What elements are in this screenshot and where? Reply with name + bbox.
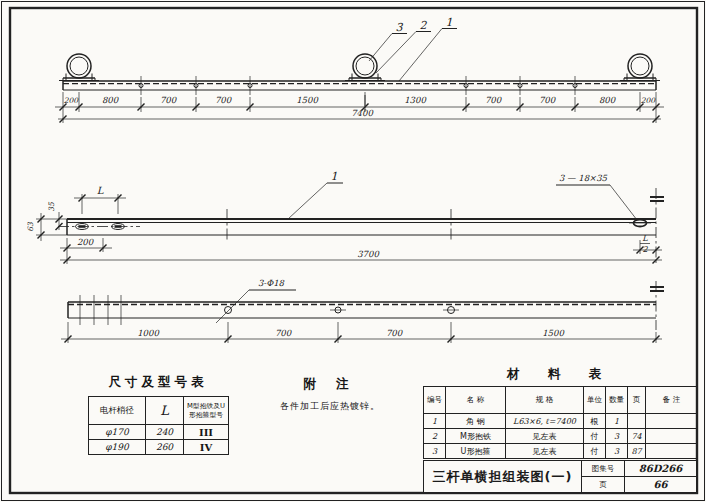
mat-header-no: 编号 (424, 387, 446, 414)
size-table-header-L: L (146, 397, 184, 425)
crossarm-beam-side (67, 219, 656, 235)
mat-cell: 3 (606, 444, 628, 459)
atlas-number-value: 86D266 (625, 461, 696, 476)
dim-label: 1000 (137, 328, 159, 338)
size-table-cell: φ170 (89, 425, 146, 440)
dim-L-half-den: 2 (642, 245, 648, 254)
dim-200-label: 200 (77, 237, 94, 247)
crossarm-beam-bottom (68, 302, 656, 318)
mat-cell: 3 (606, 429, 628, 444)
dim-label: 700 (485, 95, 502, 105)
callout-2: 2 (420, 19, 428, 32)
material-table-block: 材 料 表 编号 名 称 规 格 单位 数量 页 备 注 1 角 钢 L63×6… (423, 366, 697, 459)
mat-cell: 1 (606, 414, 628, 429)
dim-L: L (74, 185, 126, 214)
left-hole-centrelines (80, 295, 121, 325)
mat-cell: L63×6, ℓ=7400 (506, 414, 584, 429)
size-table-cell: 240 (146, 425, 184, 440)
dim-63-label: 63 (26, 221, 35, 232)
size-model-table-block: 尺寸及型号表 电杆梢径 L M型抱铁及U形抱箍型号 φ170 240 III φ… (88, 374, 228, 455)
dim-label: 200 (641, 96, 657, 105)
mat-cell: M形抱铁 (446, 429, 506, 444)
bottom-dim-row: 1000 700 700 1500 (61, 322, 662, 343)
dim-L-label: L (97, 185, 104, 196)
title-block: 三杆单横担组装图(一) 图集号 86D266 页 66 (423, 460, 697, 493)
hole-callout-bottom-label: 3-Φ18 (258, 278, 285, 288)
overall-dim-label: 7400 (351, 108, 373, 118)
dim-3700: 3700 (60, 249, 662, 264)
dim-label: 700 (386, 328, 403, 338)
notes-title: 附 注 (255, 376, 405, 393)
mat-cell: 付 (584, 429, 606, 444)
part-callouts: 3 2 1 (369, 16, 457, 81)
break-symbol-middle (650, 188, 664, 266)
mat-header-qty: 数量 (606, 387, 628, 414)
dim-label: 700 (539, 95, 556, 105)
bottom-view: 3-Φ18 1000 700 700 1500 (61, 278, 664, 343)
page-label: 页 (582, 477, 625, 492)
mat-cell: 角 钢 (446, 414, 506, 429)
mat-cell (646, 429, 698, 444)
dim-label: 800 (599, 95, 616, 105)
callout-3: 3 (396, 21, 404, 34)
hole-callout-bottom: 3-Φ18 (216, 278, 296, 323)
dim-label: 1500 (542, 328, 564, 338)
dim-label: 1500 (296, 95, 318, 105)
mat-cell: 2 (424, 429, 446, 444)
top-overall-dim: 7400 (58, 108, 661, 123)
mat-cell: 87 (628, 444, 646, 459)
mat-header-name: 名 称 (446, 387, 506, 414)
mat-cell: 见左表 (506, 444, 584, 459)
dim-label: 1300 (404, 95, 426, 105)
break-symbol-bottom (650, 281, 664, 330)
dim-L-half-num: L (642, 234, 648, 243)
hole-callout-label: 3 — 18×35 (559, 173, 608, 183)
size-table-cell: 260 (146, 440, 184, 455)
mat-cell: 3 (424, 444, 446, 459)
mat-cell (646, 414, 698, 429)
crossarm-beam-top (63, 81, 656, 90)
size-table-header-diameter: 电杆梢径 (89, 397, 146, 425)
material-table-title: 材 料 表 (423, 366, 697, 383)
dim-L-half: L 2 (633, 234, 662, 254)
size-table-cell: III (184, 425, 229, 440)
mat-cell (646, 444, 698, 459)
slot-hole-right (629, 220, 651, 227)
mat-cell: 74 (628, 429, 646, 444)
mat-cell: 根 (584, 414, 606, 429)
part-callout-middle: 1 (288, 170, 343, 219)
dim-label: 200 (64, 96, 80, 105)
notes-body: 各件加工后应热镀锌。 (255, 400, 405, 413)
mat-cell: U形抱箍 (446, 444, 506, 459)
mat-header-page: 页 (628, 387, 646, 414)
mat-cell (628, 414, 646, 429)
atlas-number-label: 图集号 (582, 461, 625, 476)
material-table: 编号 名 称 规 格 单位 数量 页 备 注 1 角 钢 L63×6, ℓ=74… (423, 386, 698, 459)
part-callout-label: 1 (331, 170, 338, 183)
page-number-value: 66 (625, 477, 696, 492)
notes-block: 附 注 各件加工后应热镀锌。 (255, 376, 405, 413)
top-view: 3 2 1 (55, 16, 664, 123)
drawing-sheet: 3 2 1 (0, 0, 706, 502)
size-table-cell: IV (184, 440, 229, 455)
mat-header-spec: 规 格 (506, 387, 584, 414)
round-holes (225, 307, 460, 314)
pole-clamp-left (59, 54, 99, 81)
size-table: 电杆梢径 L M型抱铁及U形抱箍型号 φ170 240 III φ190 260… (88, 396, 229, 455)
size-table-cell: φ190 (89, 440, 146, 455)
drawing-title: 三杆单横担组装图(一) (424, 461, 582, 492)
size-table-header-model: M型抱铁及U形抱箍型号 (184, 397, 229, 425)
hole-callout: 3 — 18×35 (556, 173, 637, 220)
mat-cell: 1 (424, 414, 446, 429)
mat-cell: 付 (584, 444, 606, 459)
dim-3700-label: 3700 (357, 249, 379, 259)
dim-label: 800 (102, 95, 119, 105)
middle-view: 3 — 18×35 1 L (26, 170, 664, 266)
dim-35-label: 35 (47, 201, 56, 212)
size-table-title: 尺寸及型号表 (88, 374, 228, 391)
callout-1: 1 (446, 16, 453, 29)
beam-bolt-holes (139, 76, 577, 95)
pole-clamp-right (620, 54, 660, 81)
mat-header-unit: 单位 (584, 387, 606, 414)
dim-label: 700 (275, 328, 292, 338)
mat-cell: 见左表 (506, 429, 584, 444)
dim-label: 700 (160, 95, 177, 105)
dim-35: 35 (47, 201, 63, 230)
dim-label: 700 (215, 95, 232, 105)
mat-header-remark: 备 注 (646, 387, 698, 414)
